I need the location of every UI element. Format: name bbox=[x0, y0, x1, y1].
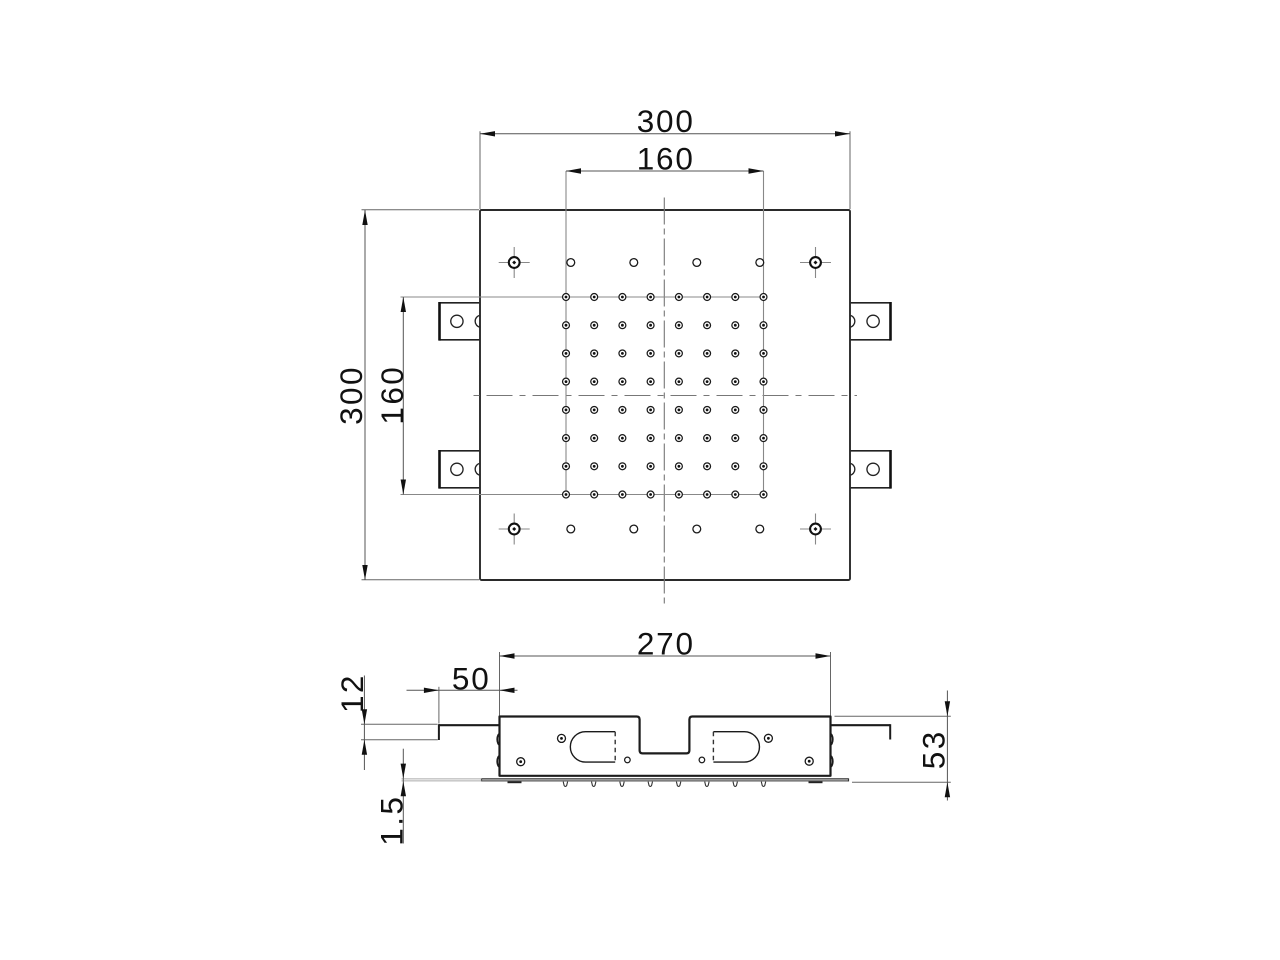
svg-text:1.5: 1.5 bbox=[373, 795, 409, 846]
svg-text:50: 50 bbox=[452, 660, 491, 696]
svg-text:300: 300 bbox=[637, 103, 695, 139]
svg-text:53: 53 bbox=[915, 729, 951, 769]
svg-text:160: 160 bbox=[637, 141, 695, 177]
svg-text:270: 270 bbox=[637, 625, 695, 661]
svg-text:160: 160 bbox=[374, 365, 410, 425]
svg-text:300: 300 bbox=[333, 365, 369, 425]
svg-text:12: 12 bbox=[334, 673, 370, 713]
